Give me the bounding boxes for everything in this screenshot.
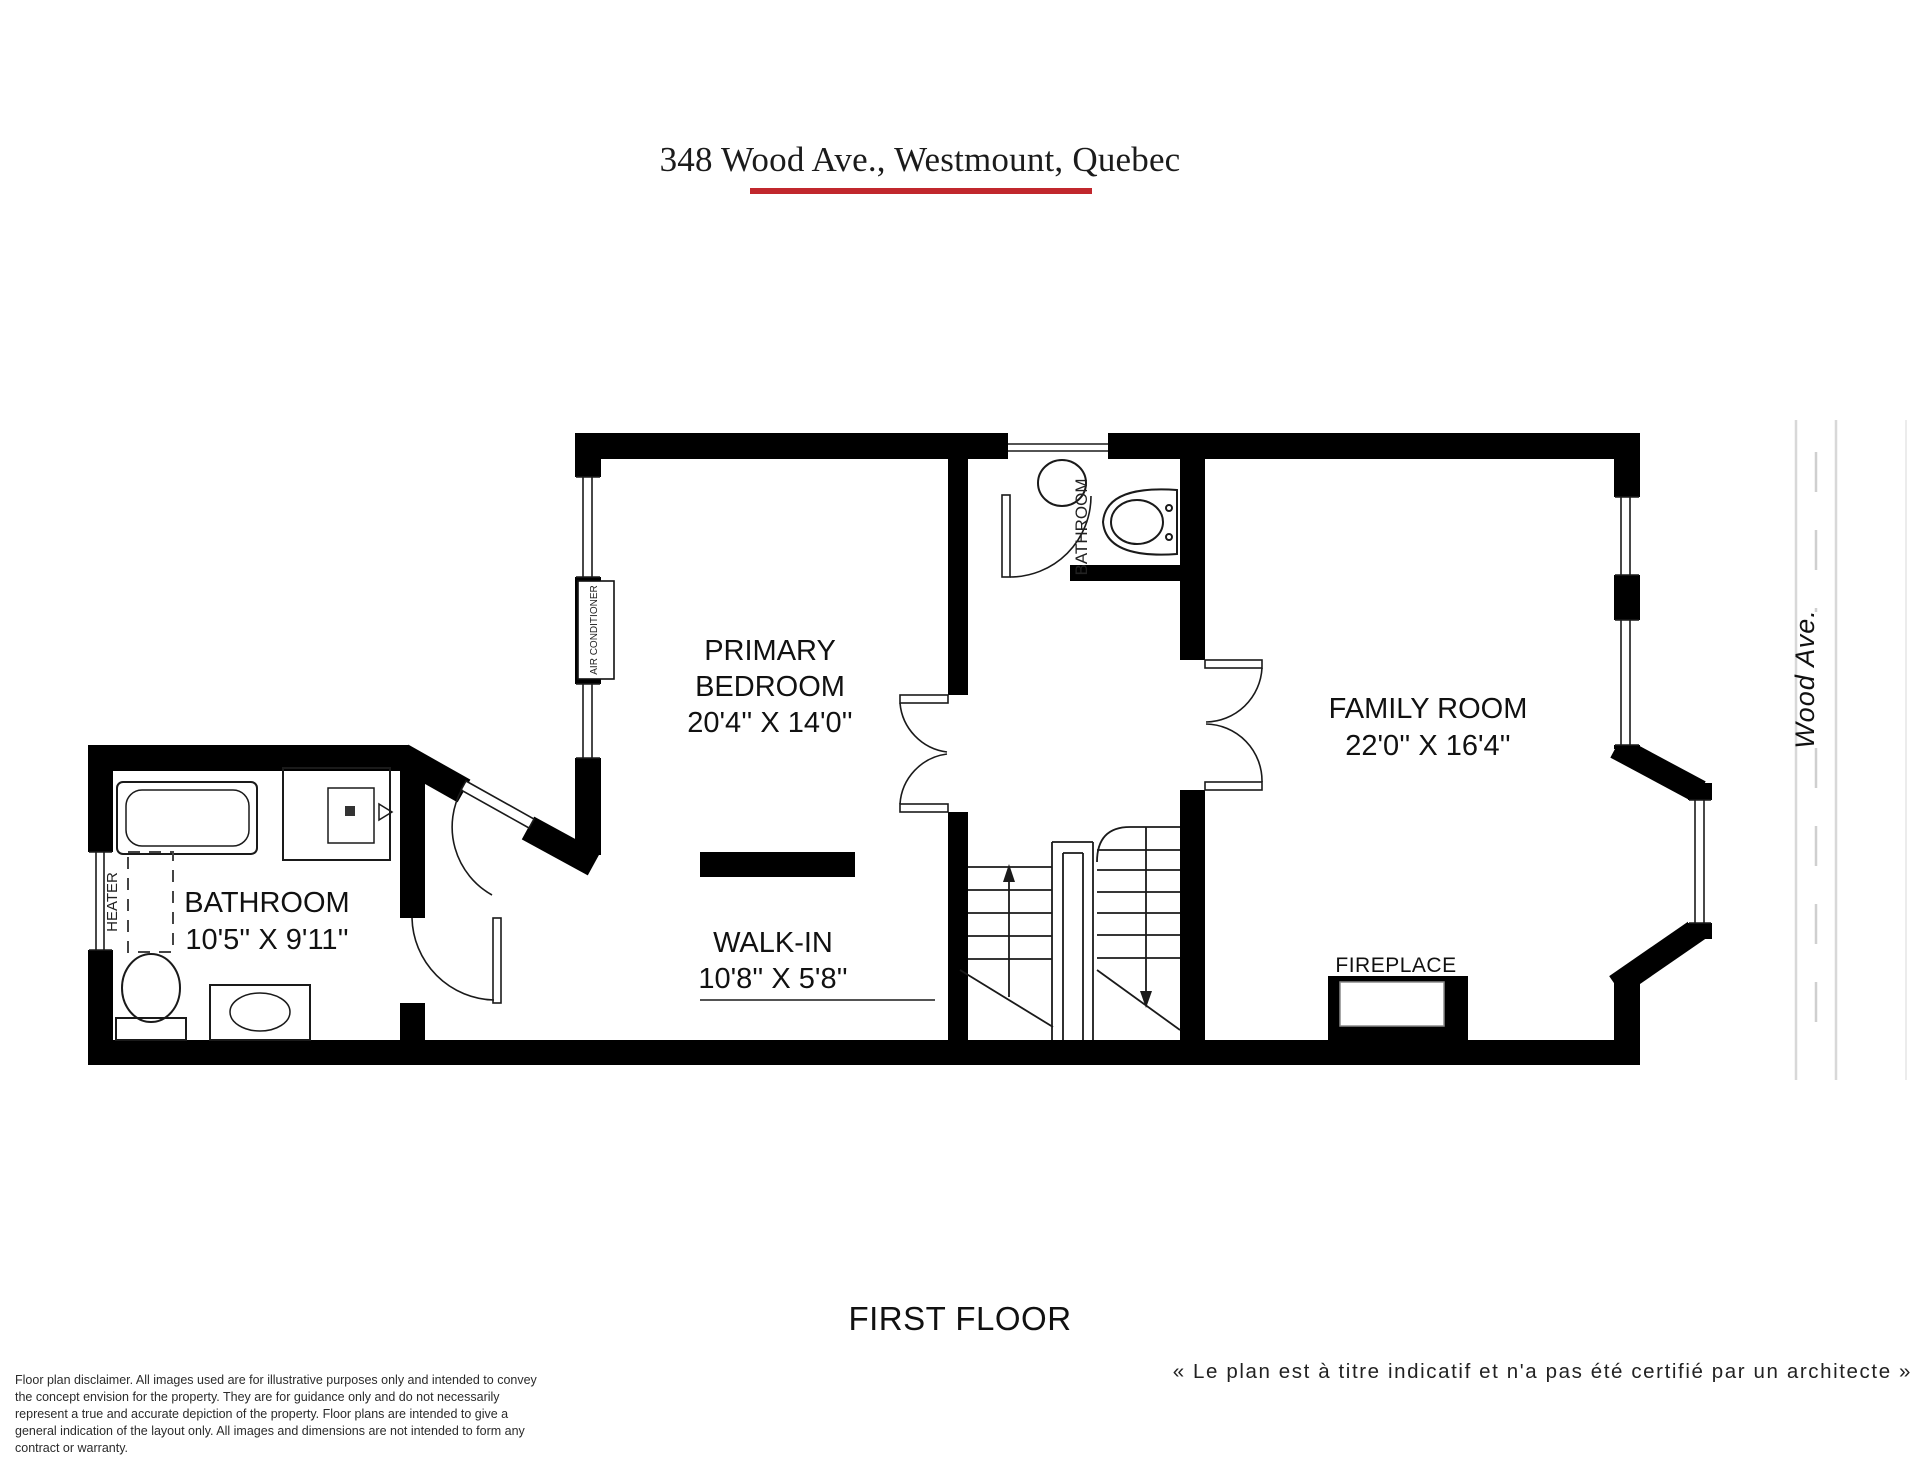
floor-title: FIRST FLOOR: [760, 1300, 1160, 1338]
fireplace-label: FIREPLACE: [1335, 954, 1456, 977]
sink-main-bathroom: [210, 985, 310, 1040]
svg-text:BATHROOM: BATHROOM: [184, 887, 349, 919]
heater-label: HEATER: [104, 872, 121, 932]
svg-text:BEDROOM: BEDROOM: [695, 671, 845, 703]
family-room-dimensions: 22'0'' X 16'4'': [1345, 730, 1510, 762]
svg-text:FAMILY ROOM: FAMILY ROOM: [1329, 693, 1528, 725]
window-familyroom-right-2: [1614, 620, 1640, 745]
family-room-label: FAMILY ROOM 22'0'' X 16'4'': [1329, 693, 1528, 762]
air-conditioner-label: AIR CONDITIONER: [589, 585, 600, 674]
toilet-upper-bathroom: [1103, 489, 1177, 554]
street-name-label: Wood Ave.: [1790, 609, 1820, 749]
door-bathroom-inner: [412, 918, 501, 1003]
bathtub: [117, 782, 257, 854]
floor-plan: Wood Ave.: [0, 0, 1920, 1483]
windows: [88, 433, 1712, 950]
french-disclaimer: « Le plan est à titre indicatif et n'a p…: [1173, 1360, 1912, 1384]
toilet-main-bathroom: [116, 954, 186, 1040]
fireplace: FIREPLACE: [1328, 954, 1468, 1042]
walk-in-label: WALK-IN 10'8'' X 5'8'': [698, 927, 847, 995]
door-diagonal-hall: [452, 781, 534, 895]
svg-text:WALK-IN: WALK-IN: [713, 927, 833, 959]
stairs-down-arrow: [1140, 991, 1152, 1008]
window-bedroom-left-2: [575, 684, 601, 758]
primary-bedroom-label: PRIMARY BEDROOM 20'4'' X 14'0'': [687, 635, 852, 739]
window-bedroom-left-1: [575, 477, 601, 577]
room-labels: PRIMARY BEDROOM 20'4'' X 14'0'' FAMILY R…: [104, 479, 1527, 995]
staircase: [960, 827, 1180, 1040]
door-familyroom-double: [1205, 660, 1262, 790]
upper-bathroom-label: BATHROOM: [1072, 479, 1091, 576]
shower: [283, 768, 392, 860]
street-road: Wood Ave.: [1790, 420, 1906, 1080]
heater-symbol: [128, 852, 173, 952]
primary-bedroom-dimensions: 20'4'' X 14'0'': [687, 707, 852, 739]
bathroom-label: BATHROOM 10'5'' X 9'11'': [184, 887, 349, 956]
bathroom-dimensions: 10'5'' X 9'11'': [185, 924, 348, 956]
door-bedroom-double: [900, 695, 948, 812]
disclaimer-text: Floor plan disclaimer. All images used a…: [15, 1372, 547, 1456]
svg-text:PRIMARY: PRIMARY: [704, 635, 836, 667]
window-above-sink: [1008, 433, 1108, 459]
window-bay: [1688, 800, 1712, 923]
window-familyroom-right-1: [1614, 497, 1640, 575]
walk-in-dimensions: 10'8'' X 5'8'': [698, 963, 847, 995]
